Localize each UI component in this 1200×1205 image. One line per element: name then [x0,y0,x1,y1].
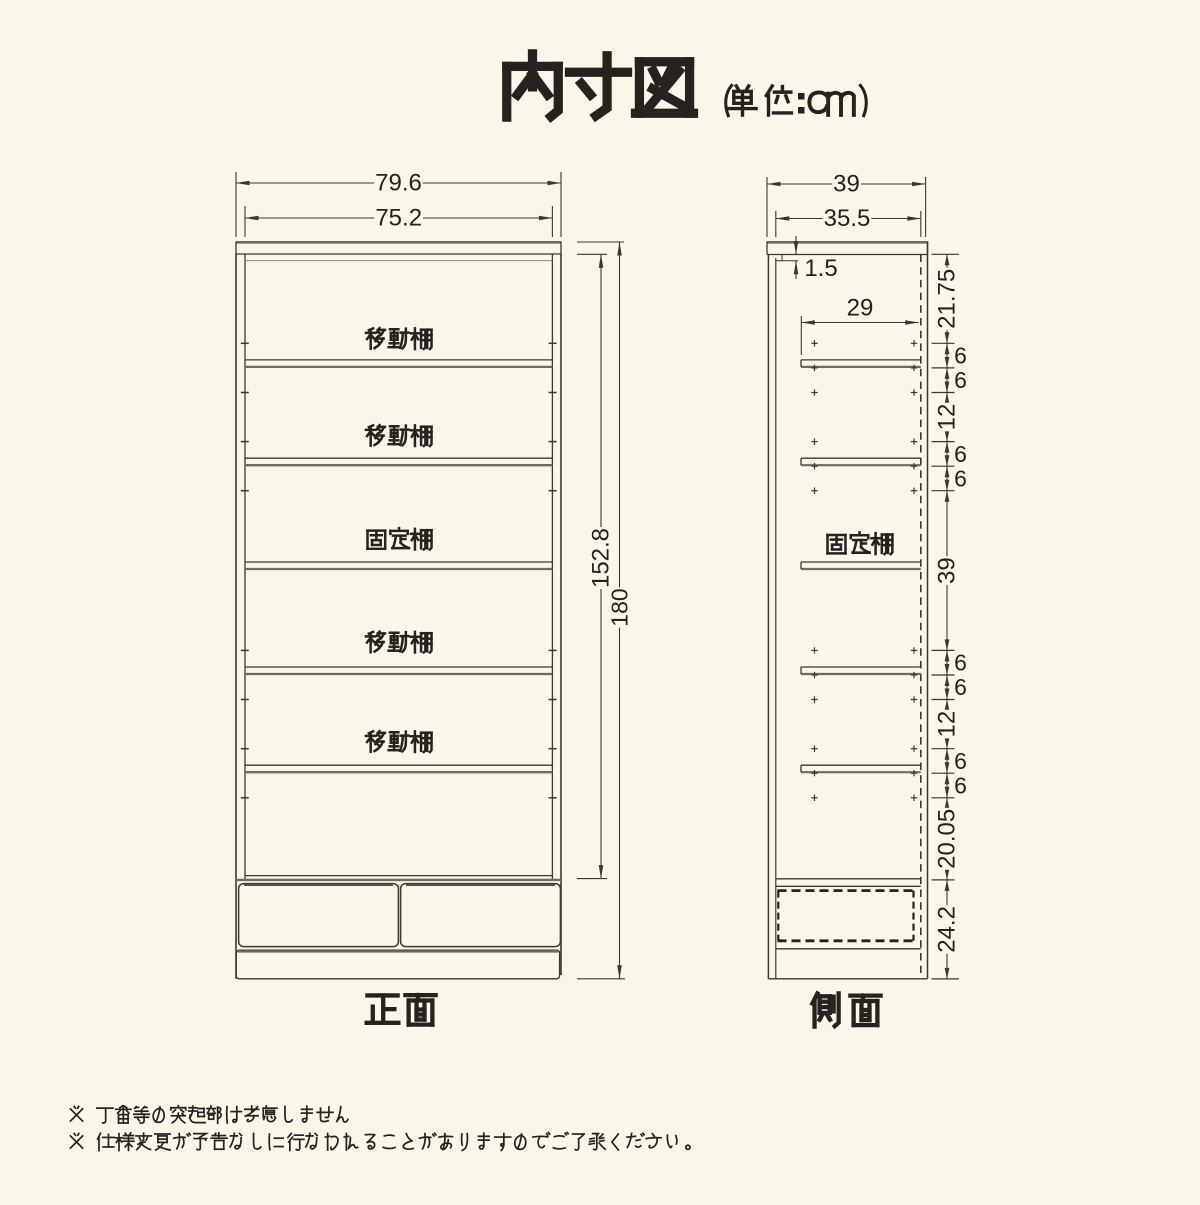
svg-text:35.5: 35.5 [824,205,871,232]
svg-text:152.8: 152.8 [588,528,615,588]
svg-text:6: 6 [954,367,967,393]
svg-text:79.6: 79.6 [375,170,422,197]
svg-text:1.5: 1.5 [804,255,837,282]
svg-text:24.2: 24.2 [934,906,961,953]
svg-text:21.75: 21.75 [934,269,961,329]
svg-text:180: 180 [607,588,633,626]
svg-text:75.2: 75.2 [375,205,422,232]
svg-text:6: 6 [954,748,967,774]
svg-text:6: 6 [954,441,967,467]
svg-text:6: 6 [954,773,967,799]
svg-text:6: 6 [954,650,967,676]
svg-text:6: 6 [954,343,967,369]
svg-text:29: 29 [847,295,874,322]
svg-text:39: 39 [934,557,961,584]
svg-text:12: 12 [934,711,961,738]
svg-text:39: 39 [833,171,860,198]
svg-text:12: 12 [934,404,961,431]
svg-text:20.05: 20.05 [934,809,961,869]
svg-text:6: 6 [954,465,967,491]
svg-text:6: 6 [954,674,967,700]
